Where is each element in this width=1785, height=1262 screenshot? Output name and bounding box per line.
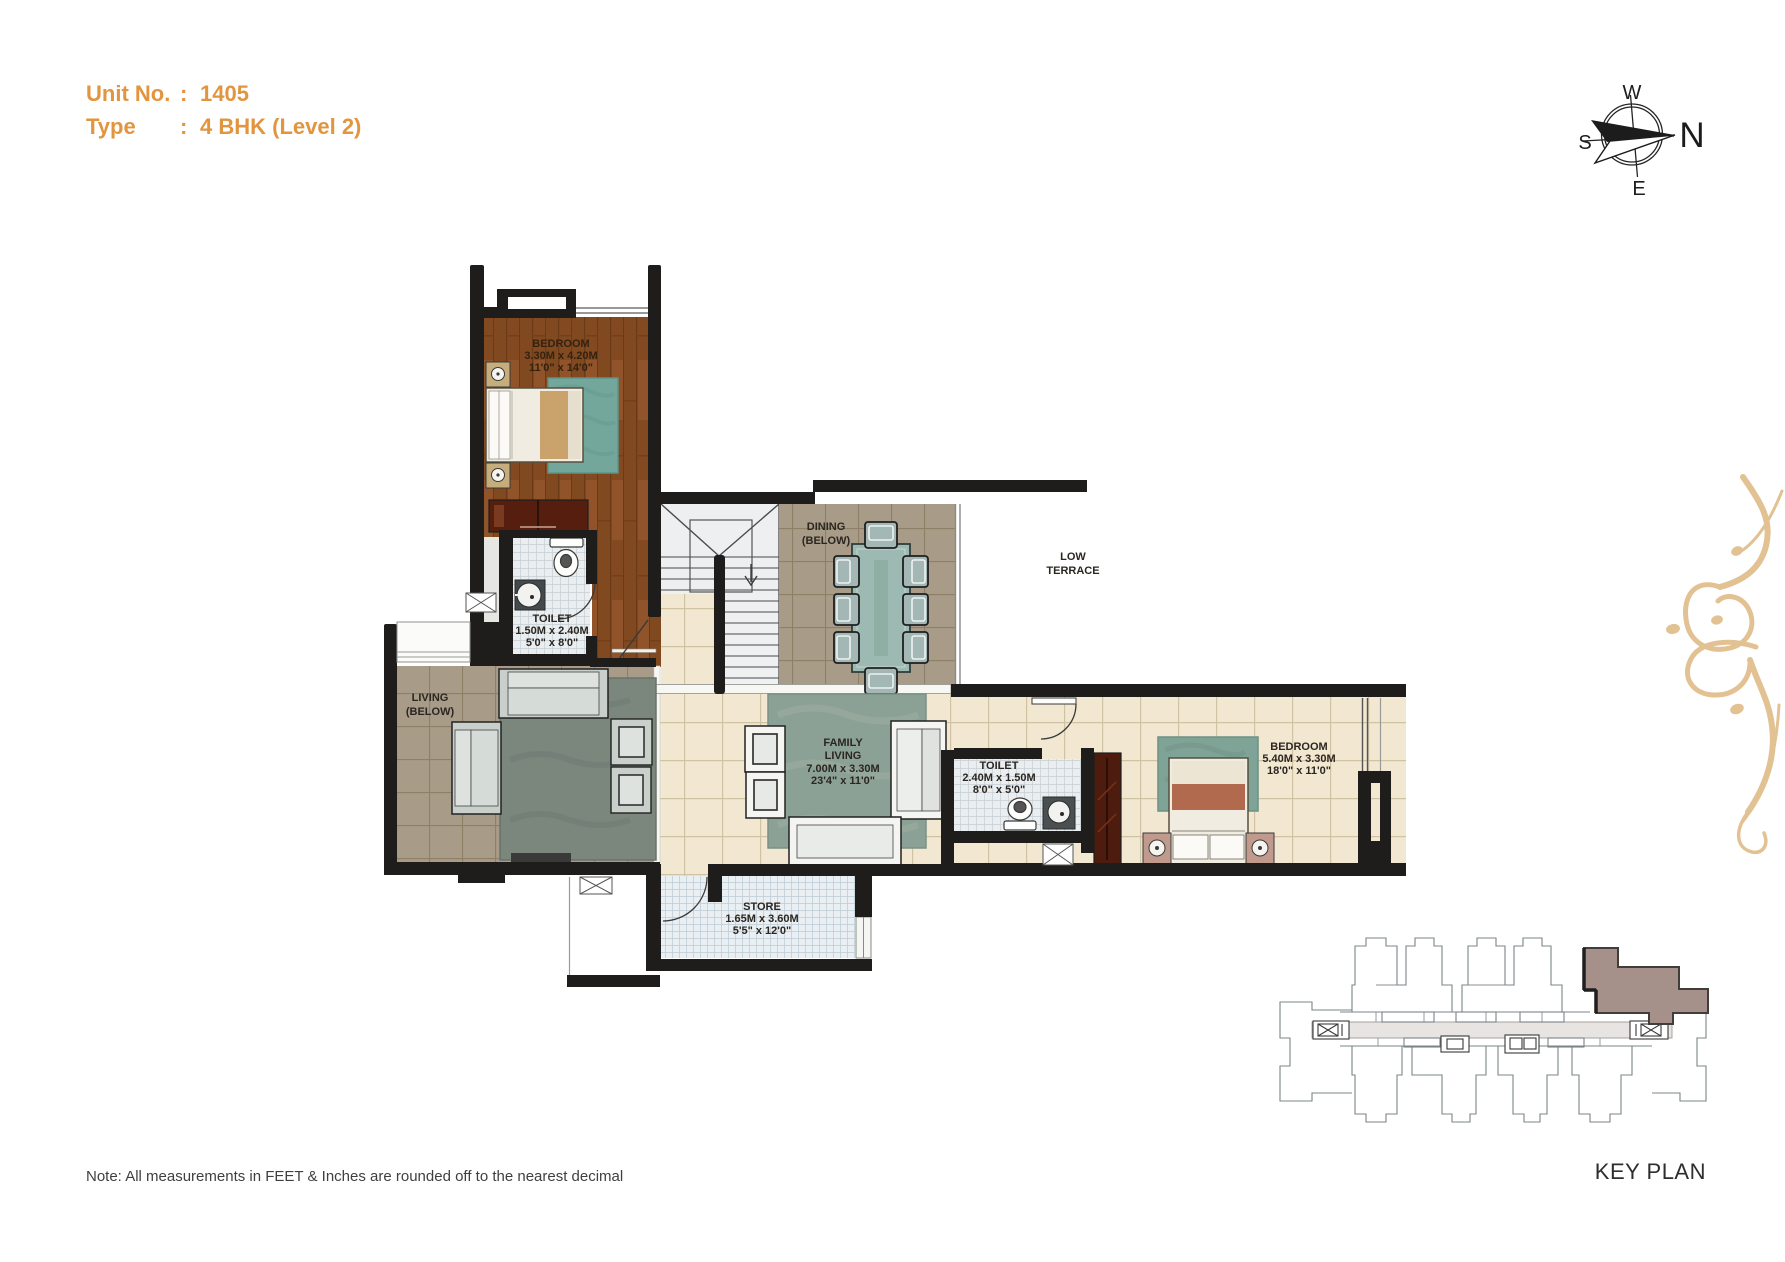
svg-text:LIVING: LIVING	[412, 692, 449, 704]
svg-text:TOILET: TOILET	[980, 760, 1019, 772]
svg-text:18'0" x 11'0": 18'0" x 11'0"	[1267, 765, 1331, 777]
svg-text:3.30M x 4.20M: 3.30M x 4.20M	[524, 350, 597, 362]
svg-text:5'5" x 12'0": 5'5" x 12'0"	[733, 925, 791, 937]
svg-text:Note: All measurements in FEET: Note: All measurements in FEET & Inches …	[86, 1168, 623, 1185]
svg-text:BEDROOM: BEDROOM	[1270, 741, 1327, 753]
svg-text:BEDROOM: BEDROOM	[532, 338, 589, 350]
svg-text:FAMILY: FAMILY	[823, 737, 863, 749]
svg-text:W: W	[1623, 82, 1642, 104]
svg-text:1405: 1405	[200, 81, 249, 106]
svg-text:2.40M x 1.50M: 2.40M x 1.50M	[962, 772, 1035, 784]
svg-text:DINING: DINING	[807, 521, 846, 533]
svg-text:E: E	[1632, 178, 1645, 200]
svg-text:KEY PLAN: KEY PLAN	[1595, 1159, 1706, 1184]
svg-text:11'0" x 14'0": 11'0" x 14'0"	[529, 362, 593, 374]
svg-text:STORE: STORE	[743, 901, 781, 913]
svg-text::: :	[180, 114, 187, 139]
svg-text:LOW: LOW	[1060, 551, 1086, 563]
svg-text:4 BHK (Level 2): 4 BHK (Level 2)	[200, 114, 361, 139]
svg-text:7.00M x 3.30M: 7.00M x 3.30M	[806, 763, 879, 775]
svg-text:S: S	[1578, 132, 1591, 154]
svg-text:1.65M x 3.60M: 1.65M x 3.60M	[725, 913, 798, 925]
svg-text:N: N	[1679, 116, 1704, 155]
svg-text:(BELOW): (BELOW)	[406, 706, 455, 718]
svg-text:5.40M x 3.30M: 5.40M x 3.30M	[1262, 753, 1335, 765]
svg-text:LIVING: LIVING	[825, 750, 862, 762]
svg-text:23'4" x 11'0": 23'4" x 11'0"	[811, 775, 875, 787]
svg-text:TOILET: TOILET	[533, 613, 572, 625]
svg-text:TERRACE: TERRACE	[1046, 565, 1099, 577]
svg-text:Unit No.: Unit No.	[86, 81, 170, 106]
svg-text:1.50M x 2.40M: 1.50M x 2.40M	[515, 625, 588, 637]
svg-text:5'0" x 8'0": 5'0" x 8'0"	[526, 637, 578, 649]
svg-text::: :	[180, 81, 187, 106]
svg-text:Type: Type	[86, 114, 136, 139]
svg-text:8'0" x 5'0": 8'0" x 5'0"	[973, 784, 1025, 796]
svg-text:(BELOW): (BELOW)	[802, 535, 851, 547]
